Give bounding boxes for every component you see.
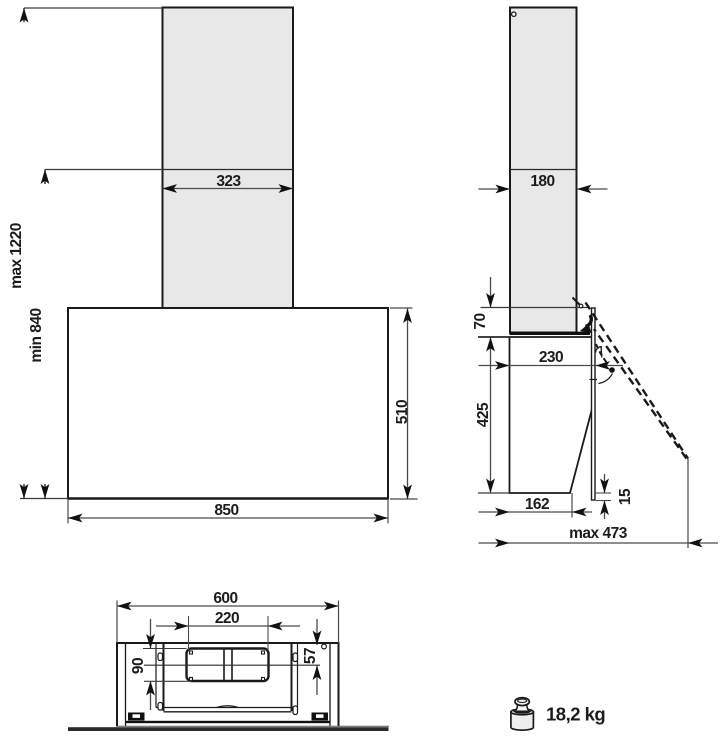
svg-text:850: 850	[214, 502, 238, 519]
svg-text:510: 510	[394, 400, 411, 424]
svg-text:57: 57	[302, 648, 319, 664]
svg-text:max 473: max 473	[569, 525, 628, 542]
svg-text:90: 90	[130, 658, 147, 674]
svg-text:18,2 kg: 18,2 kg	[546, 704, 605, 725]
svg-text:425: 425	[475, 402, 492, 427]
svg-text:323: 323	[216, 173, 241, 190]
svg-text:min 840: min 840	[28, 308, 45, 362]
svg-text:180: 180	[530, 173, 554, 190]
svg-text:70: 70	[472, 313, 489, 329]
svg-text:162: 162	[525, 496, 549, 513]
svg-text:220: 220	[215, 610, 239, 627]
svg-text:15: 15	[617, 488, 634, 505]
svg-text:230: 230	[539, 349, 563, 366]
svg-text:max 1220: max 1220	[8, 223, 25, 289]
svg-text:600: 600	[213, 590, 237, 607]
